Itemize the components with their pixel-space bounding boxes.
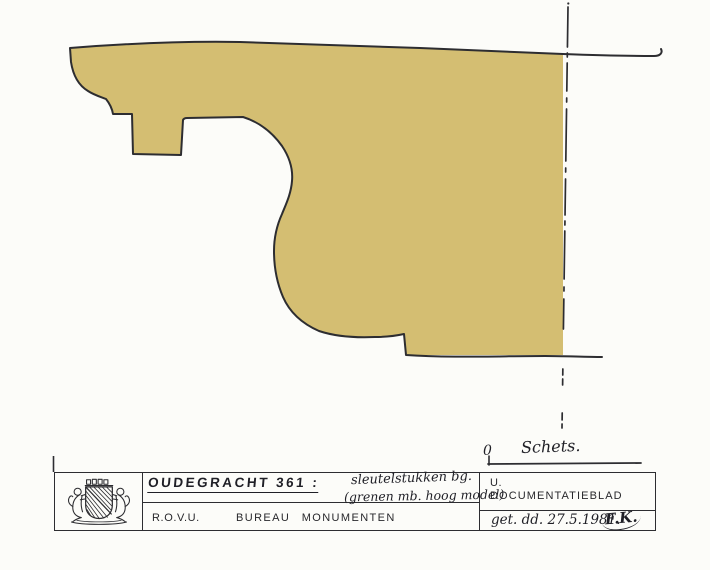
utrecht-coat-of-arms-icon <box>59 475 139 529</box>
agency-label: R.O.V.U. <box>152 512 200 524</box>
logo-cell <box>55 473 142 530</box>
documentation-sheet: 0 Schets. <box>0 0 710 570</box>
scale-zero-label: 0 <box>483 443 492 459</box>
project-title: OUDEGRACHT 361 : <box>147 475 320 493</box>
scale-bar-line <box>488 463 641 464</box>
construction-line-dot <box>567 2 569 4</box>
bureau-label: BUREAU MONUMENTEN <box>236 512 396 524</box>
subject-line2: (grenen mb. hoog model) <box>344 487 505 505</box>
scale-schets-label: Schets. <box>521 436 581 457</box>
profile-shape-fill <box>70 42 563 355</box>
doc-type-label: DOCUMENTATIEBLAD <box>490 490 623 502</box>
